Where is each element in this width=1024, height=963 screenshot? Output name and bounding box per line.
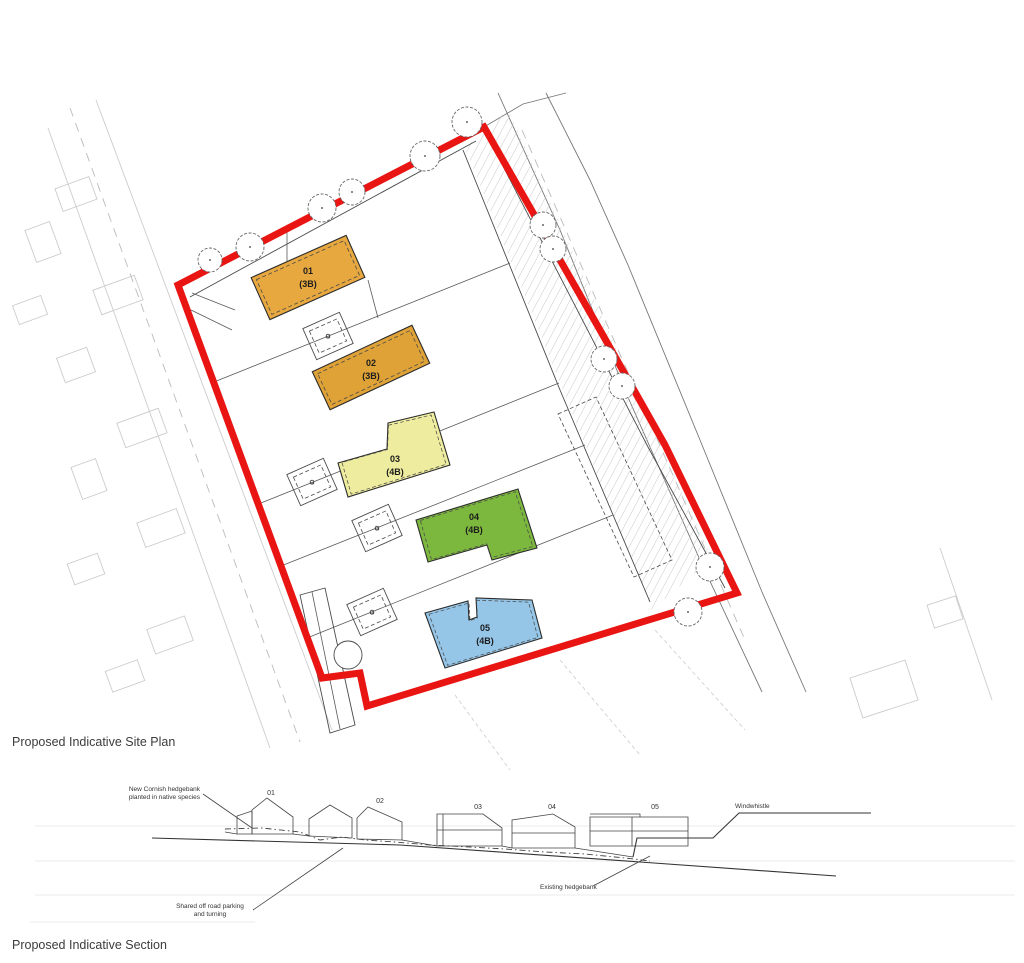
west-road-edge xyxy=(96,100,332,730)
annotation-new-hedgebank: New Cornish hedgebank planted in native … xyxy=(129,786,252,828)
plot-03-number: 03 xyxy=(390,454,400,464)
section-house-02: 02 xyxy=(309,798,402,840)
plot-04-number: 04 xyxy=(469,512,479,522)
section-bank-profile xyxy=(633,813,871,857)
plot-01-number: 01 xyxy=(303,266,313,276)
section-existing-profile xyxy=(225,828,650,861)
tree-icon xyxy=(236,233,264,261)
tree-icon xyxy=(410,141,440,171)
plot-03-beds: (4B) xyxy=(386,467,404,477)
tree-icon xyxy=(198,248,222,272)
section-drawing: 01 02 03 04 05 New Cornish hedgebank xyxy=(30,786,1015,922)
section-house-04-label: 04 xyxy=(548,804,556,811)
garage-label: G xyxy=(369,610,374,617)
garage-plot: G xyxy=(347,588,397,635)
tree-icon xyxy=(591,346,617,372)
annotation-road-name: Windwhistle xyxy=(735,803,770,810)
section-house-05-label: 05 xyxy=(651,804,659,811)
site-plan-drawing: G G G G 01 (3B) 02 (3B) xyxy=(0,0,1024,963)
plot-05-number: 05 xyxy=(480,623,490,633)
tree-icon xyxy=(674,598,702,626)
garage-label: G xyxy=(309,480,314,487)
field-boundary-dashed xyxy=(455,695,510,770)
field-boundary-dashed xyxy=(655,630,745,730)
annotation-new-hedgebank-line2: planted in native species xyxy=(129,794,201,801)
plan-title: Proposed Indicative Site Plan xyxy=(12,735,175,749)
annotation-pointer-line xyxy=(253,848,343,910)
existing-building-east xyxy=(850,660,918,718)
section-house-03-label: 03 xyxy=(474,804,482,811)
section-house-01-label: 01 xyxy=(267,790,275,797)
section-house-05: 05 xyxy=(590,804,688,846)
garage-plot: G xyxy=(287,458,337,505)
tree-icon xyxy=(696,553,724,581)
garage-plot: G xyxy=(352,504,402,551)
field-boundary-dashed xyxy=(560,660,640,755)
section-title: Proposed Indicative Section xyxy=(12,938,167,952)
garage-label: G xyxy=(374,526,379,533)
annotation-parking-line2: and turning xyxy=(194,911,227,918)
annotation-parking-line1: Shared off road parking xyxy=(176,903,244,910)
plot-02-number: 02 xyxy=(366,358,376,368)
plot-02-beds: (3B) xyxy=(362,371,380,381)
existing-buildings-west xyxy=(12,177,193,693)
plot-01-beds: (3B) xyxy=(299,279,317,289)
tree-icon xyxy=(339,179,365,205)
garage-plot: G xyxy=(303,312,353,359)
section-house-01: 01 xyxy=(237,790,293,834)
annotation-pointer-line xyxy=(203,794,252,828)
tree-icon xyxy=(540,236,566,262)
plot-03: 03 (4B) xyxy=(338,412,450,497)
tree-icon xyxy=(609,373,635,399)
plot-04: 04 (4B) xyxy=(416,489,537,562)
annotation-parking: Shared off road parking and turning xyxy=(176,848,343,918)
turning-circle xyxy=(334,641,362,669)
annotation-new-hedgebank-line1: New Cornish hedgebank xyxy=(129,786,201,793)
plot-01: 01 (3B) xyxy=(251,235,365,319)
section-ground-line xyxy=(152,838,836,876)
west-road-centerline xyxy=(70,108,300,742)
tree-icon xyxy=(452,107,482,137)
plot-05-beds: (4B) xyxy=(476,636,494,646)
section-house-02-label: 02 xyxy=(376,798,384,805)
drawing-sheet: G G G G 01 (3B) 02 (3B) xyxy=(0,0,1024,963)
section-house-03: 03 xyxy=(437,804,502,846)
plot-04-beds: (4B) xyxy=(465,525,483,535)
tree-icon xyxy=(530,212,556,238)
tree-icon xyxy=(308,194,336,222)
garage-label: G xyxy=(325,334,330,341)
annotation-existing-hedgebank-label: Existing hedgebank xyxy=(540,884,597,891)
